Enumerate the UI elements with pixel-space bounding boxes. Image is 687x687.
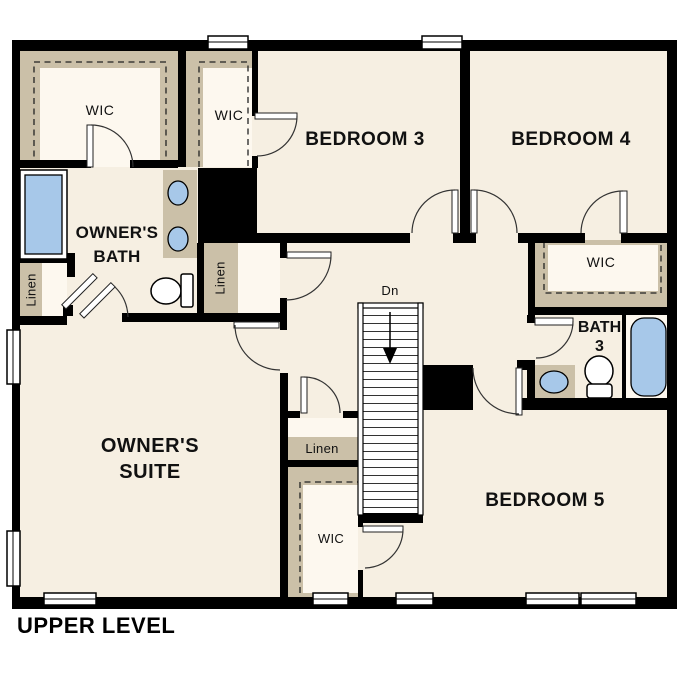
label-wic-bedroom4: WIC (551, 254, 651, 270)
label-wic-hall: WIC (199, 107, 259, 123)
stair-landing-edge (358, 303, 423, 308)
room-label-bath3: BATH 3 (562, 318, 637, 356)
window (526, 593, 579, 605)
label-linen-bath: Linen (24, 273, 39, 306)
room-label-bedroom5: BEDROOM 5 (445, 490, 645, 512)
label-stairs-down: Dn (370, 283, 410, 298)
window (422, 36, 462, 49)
room-label-owners-bath: OWNER'S BATH (57, 221, 177, 269)
window (313, 593, 348, 605)
page-title: UPPER LEVEL (17, 613, 317, 639)
label-linen-hall: Linen (213, 261, 228, 294)
floor-plan: BEDROOM 3 BEDROOM 4 BEDROOM 5 OWNER'S SU… (0, 0, 687, 687)
label-wic-owner: WIC (40, 102, 160, 118)
bath3-toilet (585, 356, 613, 398)
window (7, 531, 20, 586)
room-label-owners-suite: OWNER'S SUITE (70, 433, 230, 485)
window (396, 593, 433, 605)
window (44, 593, 96, 605)
label-wic-bedroom5: WIC (301, 531, 361, 546)
label-linen-lower: Linen (292, 441, 352, 456)
bath3-sink (540, 371, 568, 393)
window (581, 593, 636, 605)
vanity-sink-1 (168, 181, 188, 205)
stair-rail-right (418, 303, 423, 515)
staircase (358, 303, 423, 515)
room-label-bedroom3: BEDROOM 3 (265, 129, 465, 151)
window (208, 36, 248, 49)
stair-rail-left (358, 303, 363, 515)
room-label-bedroom4: BEDROOM 4 (471, 129, 671, 151)
window (7, 330, 20, 384)
